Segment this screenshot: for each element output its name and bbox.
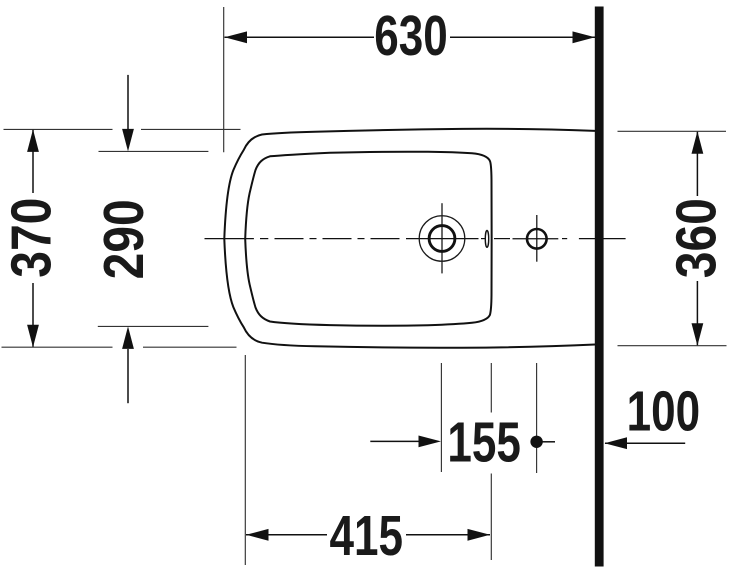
svg-text:155: 155 [447,410,521,474]
svg-text:415: 415 [329,504,403,568]
svg-text:360: 360 [666,198,728,278]
svg-text:290: 290 [93,199,155,279]
svg-text:630: 630 [374,4,448,68]
svg-text:100: 100 [627,379,701,443]
svg-text:370: 370 [1,198,63,278]
